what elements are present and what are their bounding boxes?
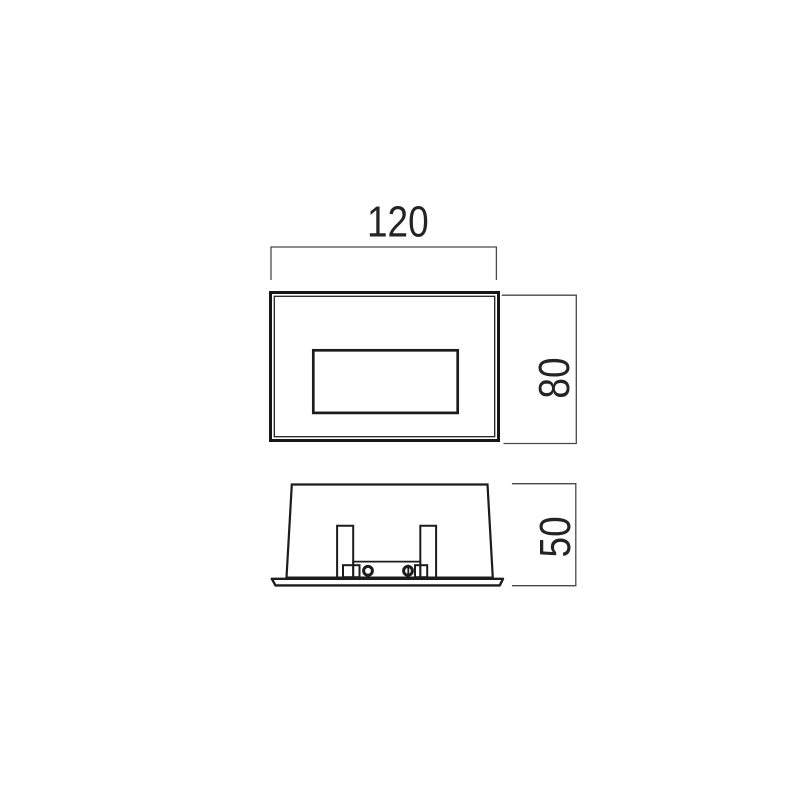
svg-text:120: 120	[367, 197, 429, 247]
svg-text:80: 80	[529, 357, 579, 398]
svg-text:50: 50	[530, 516, 580, 557]
